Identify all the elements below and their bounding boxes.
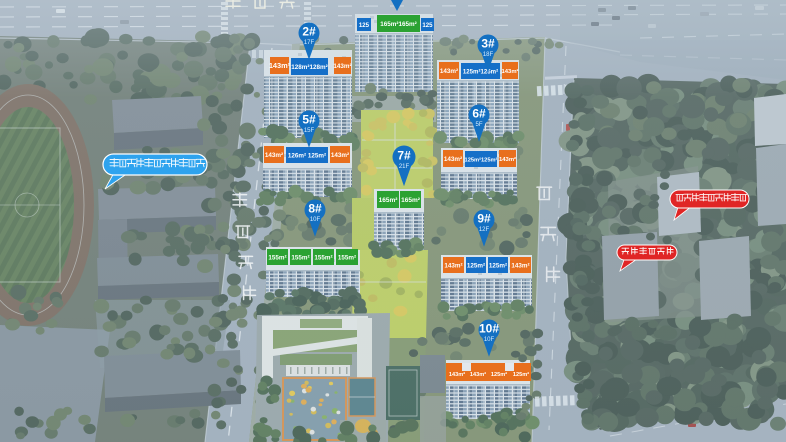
svg-text:143m²: 143m² <box>269 61 291 70</box>
svg-text:15F: 15F <box>304 128 315 134</box>
svg-text:143m²: 143m² <box>499 156 516 163</box>
svg-text:125m²: 125m² <box>513 371 529 378</box>
svg-text:125m²: 125m² <box>467 263 485 270</box>
svg-text:143m²: 143m² <box>470 371 486 378</box>
svg-text:10F: 10F <box>310 217 321 223</box>
svg-text:165m²165m²: 165m²165m² <box>380 21 416 28</box>
svg-text:143m²: 143m² <box>265 152 283 159</box>
svg-text:9#: 9# <box>477 212 491 226</box>
svg-text:165m²: 165m² <box>401 197 421 204</box>
svg-text:155m²: 155m² <box>314 255 332 262</box>
svg-text:165m²: 165m² <box>379 197 399 204</box>
svg-text:2#: 2# <box>302 25 316 39</box>
svg-text:143m²: 143m² <box>444 156 462 163</box>
svg-text:155m²: 155m² <box>291 255 309 262</box>
svg-text:17F: 17F <box>304 40 315 46</box>
svg-text:10#: 10# <box>479 322 499 336</box>
svg-text:125m²125m²: 125m²125m² <box>463 69 498 76</box>
svg-text:143m²: 143m² <box>444 263 462 270</box>
svg-text:18F: 18F <box>483 52 494 58</box>
svg-text:126m² 125m²: 126m² 125m² <box>288 153 326 160</box>
svg-text:6#: 6# <box>472 107 486 121</box>
svg-text:125: 125 <box>359 22 370 29</box>
svg-text:10F: 10F <box>484 337 495 343</box>
svg-text:5F: 5F <box>475 122 482 128</box>
svg-text:125m²: 125m² <box>489 263 507 270</box>
svg-text:125m²: 125m² <box>491 371 507 378</box>
svg-text:143m²: 143m² <box>331 152 349 159</box>
svg-text:143m²: 143m² <box>333 63 351 70</box>
svg-text:21F: 21F <box>399 164 410 170</box>
svg-text:3#: 3# <box>481 37 495 51</box>
svg-text:125: 125 <box>422 22 433 29</box>
svg-text:125m²125m²: 125m²125m² <box>465 157 498 164</box>
svg-text:155m²: 155m² <box>268 255 286 262</box>
svg-text:155m²: 155m² <box>338 255 356 262</box>
svg-text:5#: 5# <box>302 113 316 127</box>
svg-text:128m²128m²: 128m²128m² <box>291 64 327 71</box>
svg-text:8#: 8# <box>308 202 322 216</box>
svg-text:143m²: 143m² <box>511 263 529 270</box>
svg-text:12F: 12F <box>479 227 490 233</box>
svg-text:143m²: 143m² <box>501 68 518 75</box>
svg-text:7#: 7# <box>397 149 411 163</box>
svg-text:143m²: 143m² <box>440 68 458 75</box>
svg-text:143m²: 143m² <box>449 371 465 378</box>
